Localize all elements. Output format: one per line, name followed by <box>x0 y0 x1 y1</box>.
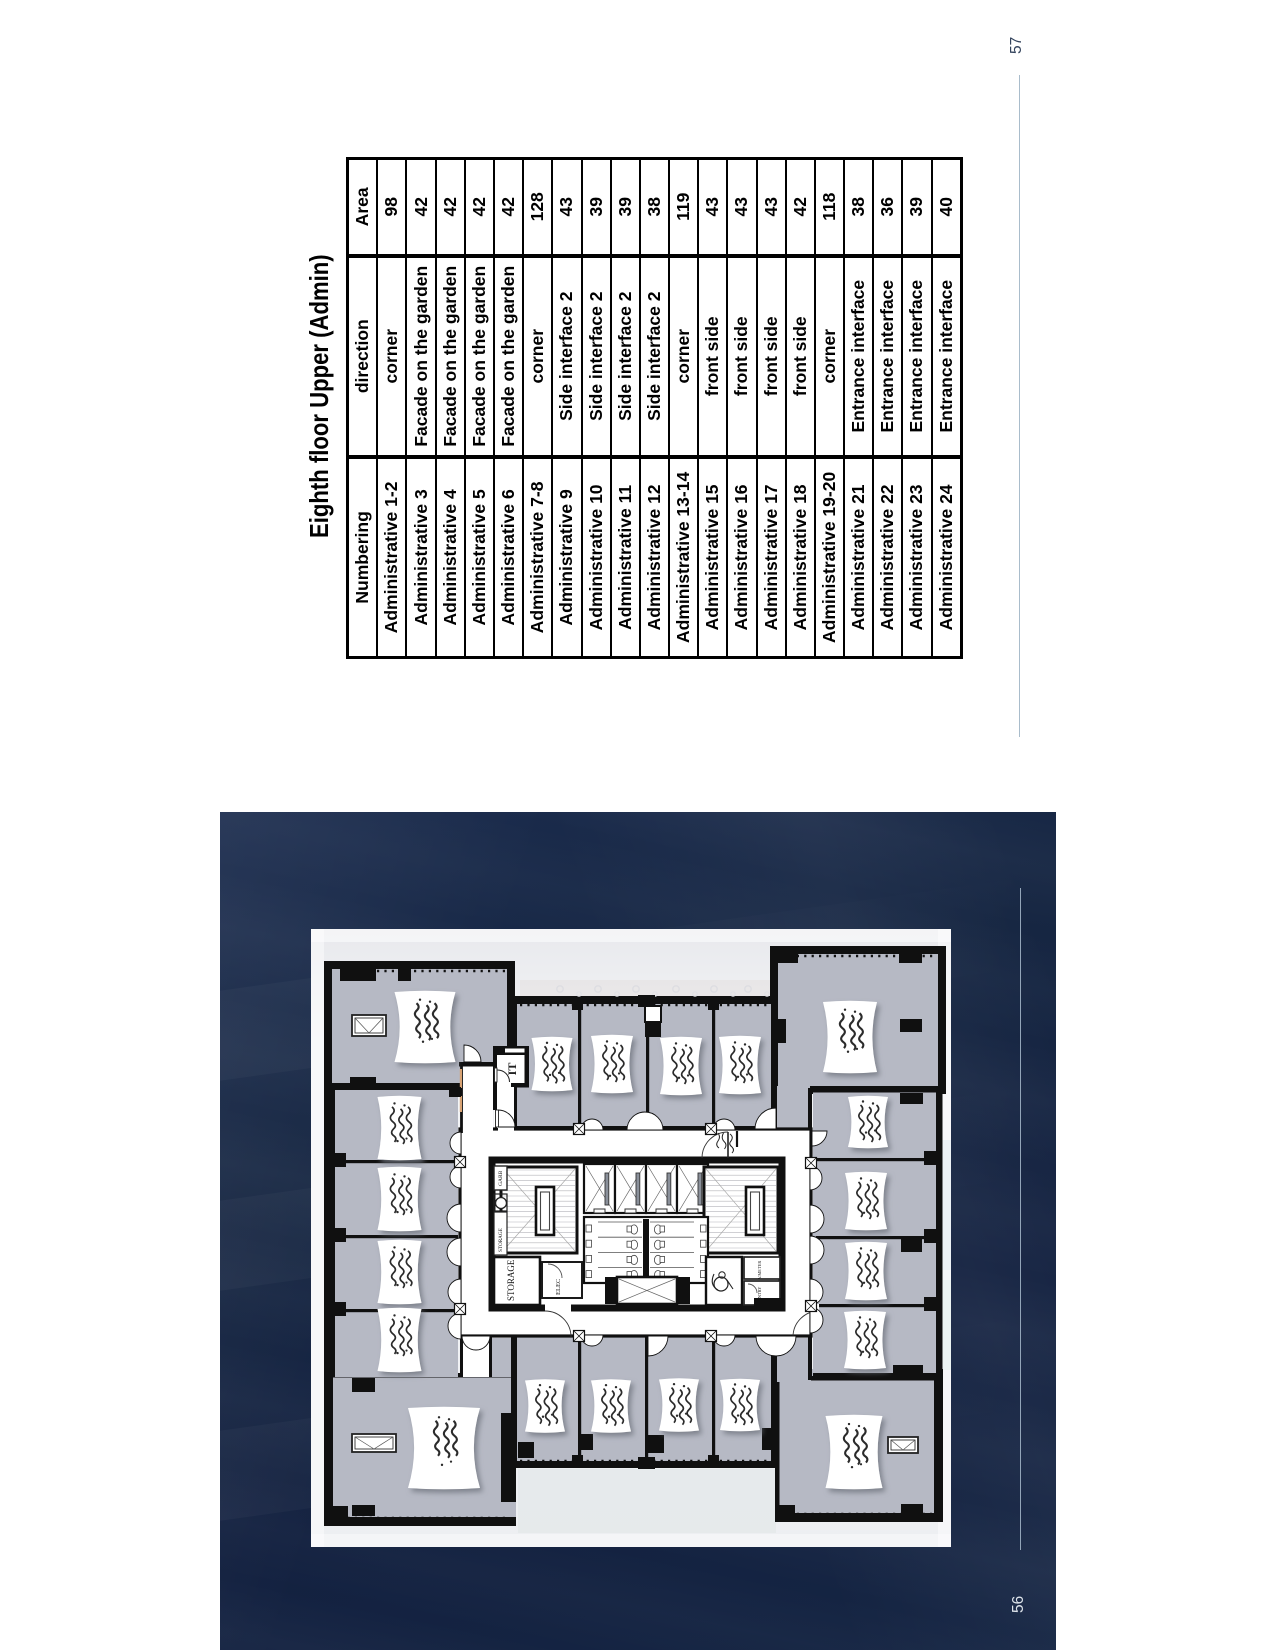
svg-text:STORAGE: STORAGE <box>506 1259 516 1301</box>
svg-text:STORAGE: STORAGE <box>498 1228 504 1252</box>
svg-text:IT: IT <box>505 1063 519 1076</box>
svg-text:GARB: GARB <box>498 1170 504 1186</box>
svg-text:ELEC: ELEC <box>555 1279 562 1295</box>
svg-text:V.METER: V.METER <box>757 1261 762 1280</box>
